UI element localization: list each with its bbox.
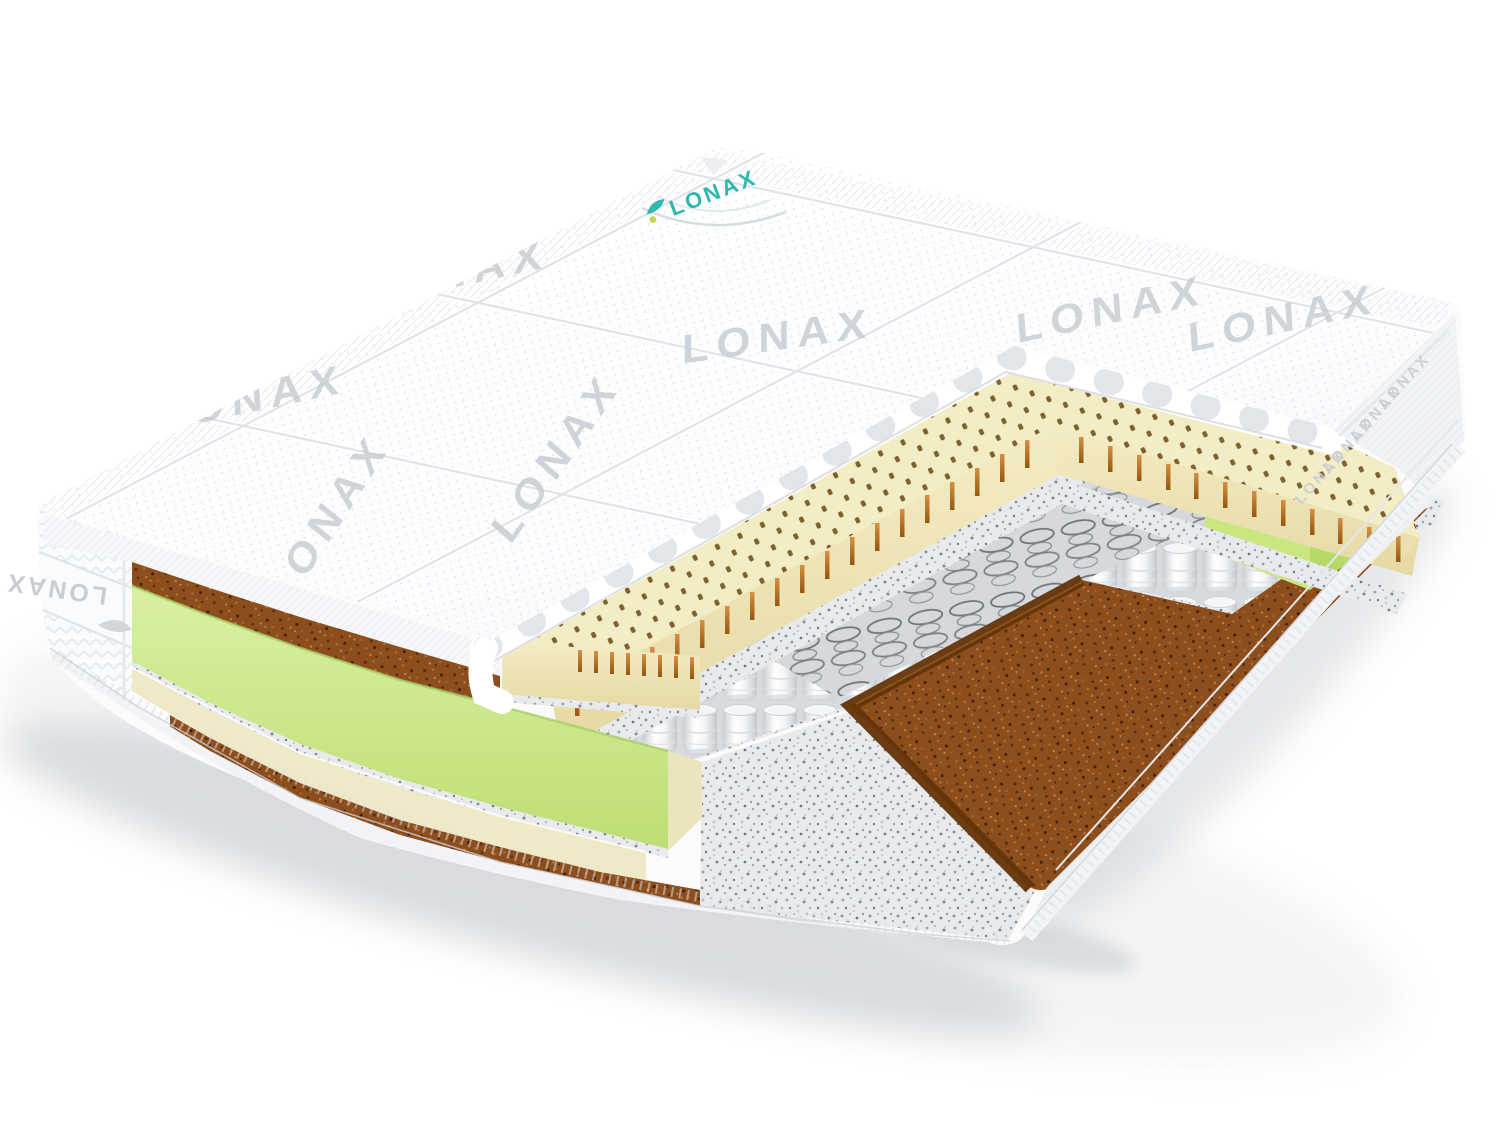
mattress-product-render: LONAX — [0, 0, 1500, 1125]
render-canvas: LONAX — [0, 0, 1500, 1125]
